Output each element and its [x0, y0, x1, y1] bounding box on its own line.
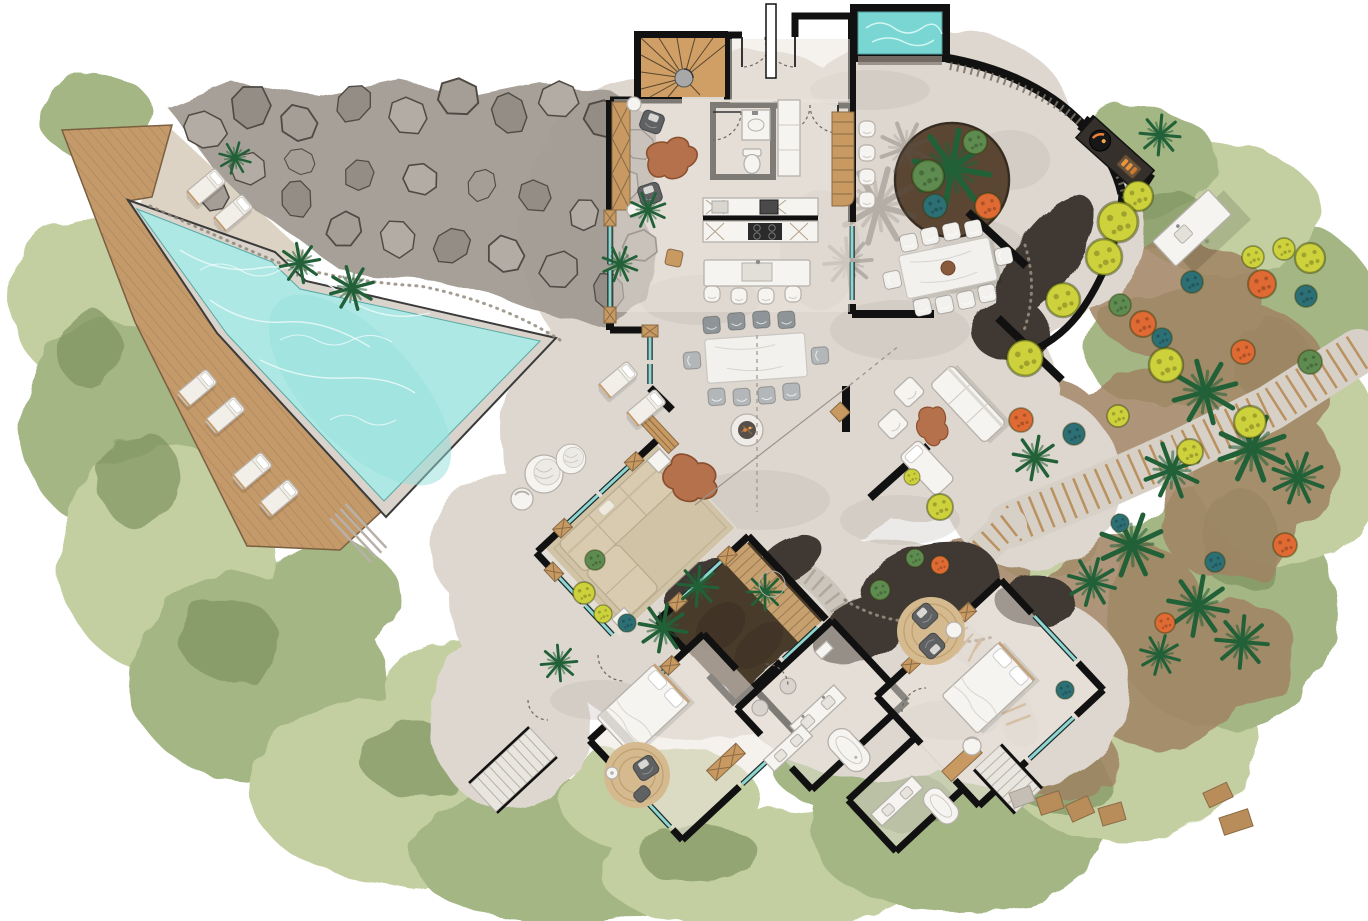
villa-floor-plan	[0, 0, 1368, 921]
entry-canopy	[766, 4, 776, 78]
fire-bowl	[731, 414, 763, 446]
spiral-stair-room-floor	[641, 38, 725, 97]
guest-rug	[897, 597, 965, 665]
bath-stool	[780, 678, 796, 694]
desk-chair	[963, 737, 981, 755]
bath-stool	[752, 700, 768, 716]
plunge-pool	[854, 8, 946, 65]
bar-counter	[832, 112, 875, 208]
floor-plan-canvas	[0, 0, 1368, 921]
tall-cabinet	[778, 100, 800, 176]
master-rug	[604, 742, 670, 808]
side-table	[946, 622, 962, 638]
